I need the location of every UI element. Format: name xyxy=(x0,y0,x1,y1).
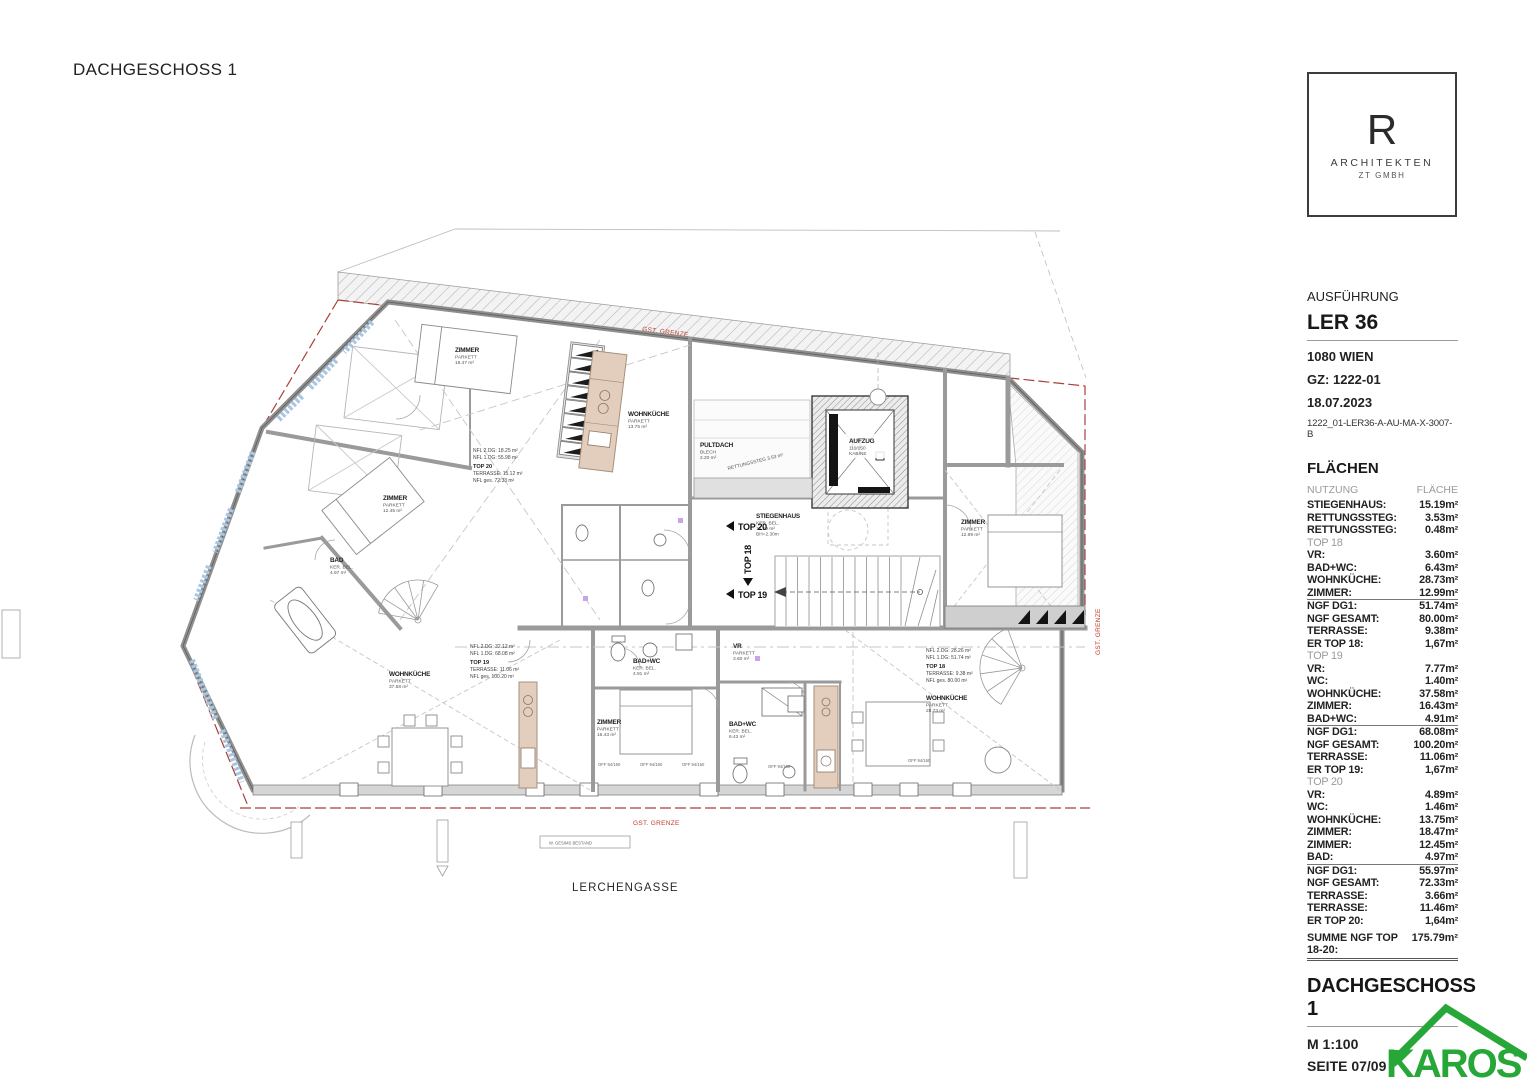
svg-text:ZIMMER: ZIMMER xyxy=(597,719,622,726)
area-row-label: WC: xyxy=(1307,675,1328,688)
stiegenhaus-label: STIEGENHAUS xyxy=(756,513,801,520)
area-row-value: 1,67m² xyxy=(1425,764,1458,777)
area-row-value: 16.43m² xyxy=(1419,700,1458,713)
svg-text:BLECH: BLECH xyxy=(700,450,717,456)
area-row-label: TERRASSE: xyxy=(1307,751,1368,764)
svg-text:WOHNKÜCHE: WOHNKÜCHE xyxy=(389,669,431,678)
svg-text:TOP 19: TOP 19 xyxy=(470,660,489,666)
svg-text:VR: VR xyxy=(733,643,742,650)
svg-text:KER. BEL.: KER. BEL. xyxy=(729,729,752,735)
svg-text:OFF 94/160: OFF 94/160 xyxy=(598,762,621,767)
area-row-value: 3.60m² xyxy=(1425,549,1458,562)
area-row-value: 3.53m² xyxy=(1425,512,1458,525)
area-row-value: 55.97m² xyxy=(1419,865,1458,878)
svg-text:TOP 19: TOP 19 xyxy=(738,590,767,600)
elevator-label: AUFZUG xyxy=(849,438,875,445)
col-flaeche: FLÄCHE xyxy=(1417,484,1458,496)
area-row: TERRASSE: 3.66m² xyxy=(1307,890,1458,903)
svg-text:3.60 m²: 3.60 m² xyxy=(733,656,750,662)
gesims-note: W. GESIMS BESTAND xyxy=(549,841,592,846)
area-row-label: ER TOP 18: xyxy=(1307,638,1363,651)
svg-text:BAD+WC: BAD+WC xyxy=(633,658,661,665)
area-row-label: TERRASSE: xyxy=(1307,625,1368,638)
area-row-value: 28.73m² xyxy=(1419,574,1458,587)
svg-text:NFL 2.DG: 18.25 m²: NFL 2.DG: 18.25 m² xyxy=(473,448,518,454)
area-row-value: 68.08m² xyxy=(1419,726,1458,739)
areas-table-header: NUTZUNG FLÄCHE xyxy=(1307,484,1458,496)
area-row-label: VR: xyxy=(1307,789,1325,802)
pultdach-zone: PULTDACH BLECH 2.20 m² RETTUNGSSTEG 3.53… xyxy=(694,400,812,498)
area-row-label: NGF GESAMT: xyxy=(1307,877,1379,890)
svg-text:KABINE: KABINE xyxy=(849,451,867,457)
svg-text:28.73 m²: 28.73 m² xyxy=(926,708,945,714)
area-row-label: RETTUNGSSTEG: xyxy=(1307,512,1397,525)
area-row: BAD+WC: 4.91m² xyxy=(1307,713,1458,727)
svg-text:OFF 94/160: OFF 94/160 xyxy=(640,762,663,767)
street-label: LERCHENGASSE xyxy=(572,882,679,894)
area-row: NGF DG1: 68.08m² xyxy=(1307,726,1458,739)
area-row-value: 13.75m² xyxy=(1419,814,1458,827)
svg-text:TERRASSE: 15.12 m²: TERRASSE: 15.12 m² xyxy=(473,471,523,477)
svg-text:NFL ges. 72.33 m²: NFL ges. 72.33 m² xyxy=(473,478,515,484)
area-row-value: 1,67m² xyxy=(1425,638,1458,651)
area-row-label: WOHNKÜCHE: xyxy=(1307,814,1381,827)
area-row: RETTUNGSSTEG: 0.48m² xyxy=(1307,524,1458,537)
titleblock: R ARCHITEKTEN ZT GMBH AUSFÜHRUNG LER 36 … xyxy=(1307,0,1458,1080)
area-row-label: WOHNKÜCHE: xyxy=(1307,688,1381,701)
svg-text:KER. BEL.: KER. BEL. xyxy=(633,666,656,672)
svg-text:OFF 94/160: OFF 94/160 xyxy=(768,764,791,769)
area-row-label: ZIMMER: xyxy=(1307,826,1352,839)
svg-text:PARKETT: PARKETT xyxy=(455,355,477,361)
area-row: VR: 4.89m² xyxy=(1307,789,1458,802)
svg-text:111/150: 111/150 xyxy=(849,446,866,452)
sum-value: 175.79m² xyxy=(1412,932,1458,956)
logo-letter: R xyxy=(1367,110,1397,150)
kitchen-top19 xyxy=(519,682,537,788)
svg-text:PARKETT: PARKETT xyxy=(383,503,405,509)
svg-text:12.99 m²: 12.99 m² xyxy=(961,532,980,538)
area-row-value: 12.45m² xyxy=(1419,839,1458,852)
area-row-value: 11.46m² xyxy=(1420,902,1458,915)
area-row-value: 0.48m² xyxy=(1425,524,1458,537)
south-facade xyxy=(253,785,1062,795)
area-row: ZIMMER: 12.45m² xyxy=(1307,839,1458,852)
svg-text:13.75 m²: 13.75 m² xyxy=(628,424,647,430)
svg-text:BH=2.30m: BH=2.30m xyxy=(756,532,779,538)
area-row: BAD: 4.97m² xyxy=(1307,851,1458,865)
document-number: 1222_01-LER36-A-AU-MA-X-3007-B xyxy=(1307,418,1458,440)
area-row: TOP 19 xyxy=(1307,650,1458,663)
area-row-value: 51.74m² xyxy=(1419,600,1458,613)
svg-text:NFL 2.DG: 28.26 m²: NFL 2.DG: 28.26 m² xyxy=(926,648,971,654)
svg-text:16.43 m²: 16.43 m² xyxy=(597,732,616,738)
svg-text:4.91 m²: 4.91 m² xyxy=(633,671,650,677)
area-row-label: TERRASSE: xyxy=(1307,890,1368,903)
area-row: ER TOP 20: 1,64m² xyxy=(1307,915,1458,928)
area-row-value: 80.00m² xyxy=(1419,613,1458,626)
area-row-value: 72.33m² xyxy=(1419,877,1458,890)
project-city: 1080 WIEN xyxy=(1307,349,1458,364)
area-row-label: ER TOP 20: xyxy=(1307,915,1363,928)
svg-text:BAD: BAD xyxy=(330,557,344,564)
area-row-label: VR: xyxy=(1307,663,1325,676)
area-row-value: 1.46m² xyxy=(1425,801,1458,814)
svg-text:TERRASSE: 11.06 m²: TERRASSE: 11.06 m² xyxy=(470,667,519,673)
svg-text:TOP 20: TOP 20 xyxy=(473,464,492,470)
axis-bubble xyxy=(870,389,886,405)
area-row-value: 4.89m² xyxy=(1425,789,1458,802)
area-row-label: NGF DG1: xyxy=(1307,726,1357,739)
area-row: NGF DG1: 51.74m² xyxy=(1307,600,1458,613)
svg-text:WOHNKÜCHE: WOHNKÜCHE xyxy=(628,409,670,418)
logo-name: ARCHITEKTEN xyxy=(1331,157,1434,169)
area-row-label: TERRASSE: xyxy=(1307,902,1368,915)
svg-text:TOP 18: TOP 18 xyxy=(926,664,945,670)
area-row: VR: 7.77m² xyxy=(1307,663,1458,676)
area-row: WC: 1.40m² xyxy=(1307,675,1458,688)
area-row-value: 7.77m² xyxy=(1425,663,1458,676)
area-row-value: 18.47m² xyxy=(1419,826,1458,839)
svg-text:PARKETT: PARKETT xyxy=(926,703,948,709)
svg-text:18.47 m²: 18.47 m² xyxy=(455,360,474,366)
svg-text:TOP 20: TOP 20 xyxy=(738,522,767,532)
area-row-label: BAD: xyxy=(1307,851,1333,864)
area-row-label: BAD+WC: xyxy=(1307,713,1357,726)
area-row-label: NGF GESAMT: xyxy=(1307,739,1379,752)
svg-text:NFL 1.DG: 55.98 m²: NFL 1.DG: 55.98 m² xyxy=(473,455,518,461)
svg-text:ZIMMER: ZIMMER xyxy=(961,519,986,526)
drawing-sheet: DACHGESCHOSS 1 GST. xyxy=(0,0,1527,1080)
svg-text:PARKETT: PARKETT xyxy=(597,727,619,733)
svg-text:OFF 94/160: OFF 94/160 xyxy=(682,762,705,767)
area-row-label: ER TOP 19: xyxy=(1307,764,1363,777)
svg-text:PARKETT: PARKETT xyxy=(733,651,755,657)
area-row-value: 12.99m² xyxy=(1419,587,1458,600)
area-row-label: NGF DG1: xyxy=(1307,865,1357,878)
area-row-value: 37.58m² xyxy=(1419,688,1458,701)
area-row-value: 11.06m² xyxy=(1420,751,1458,764)
svg-text:NFL 1.DG: 51.74 m²: NFL 1.DG: 51.74 m² xyxy=(926,655,971,661)
area-row: NGF GESAMT: 100.20m² xyxy=(1307,739,1458,752)
svg-text:37.58 m²: 37.58 m² xyxy=(389,684,408,690)
area-row-label: BAD+WC: xyxy=(1307,562,1357,575)
area-row: TERRASSE: 11.06m² xyxy=(1307,751,1458,764)
area-row: ER TOP 19: 1,67m² xyxy=(1307,764,1458,777)
area-row-label: ZIMMER: xyxy=(1307,700,1352,713)
svg-text:TOP 18: TOP 18 xyxy=(743,545,753,574)
svg-text:NFL ges. 80.00 m²: NFL ges. 80.00 m² xyxy=(926,678,968,684)
project-gz: GZ: 1222-01 xyxy=(1307,372,1458,387)
svg-text:4.97 m²: 4.97 m² xyxy=(330,570,347,576)
svg-text:PARKETT: PARKETT xyxy=(628,419,650,425)
entry-top18: TOP 18 xyxy=(743,545,753,586)
area-row-label: TOP 18 xyxy=(1307,537,1343,550)
area-row: TERRASSE: 11.46m² xyxy=(1307,902,1458,915)
pultdach-label: PULTDACH xyxy=(700,442,734,449)
area-row: RETTUNGSSTEG: 3.53m² xyxy=(1307,512,1458,525)
area-row-value: 1,64m² xyxy=(1425,915,1458,928)
area-row-label: NGF DG1: xyxy=(1307,600,1357,613)
area-row-value: 6.43m² xyxy=(1425,562,1458,575)
area-row: WC: 1.46m² xyxy=(1307,801,1458,814)
area-row: NGF DG1: 55.97m² xyxy=(1307,865,1458,878)
area-row-value: 9.38m² xyxy=(1425,625,1458,638)
area-row: ZIMMER: 12.99m² xyxy=(1307,587,1458,601)
area-row: STIEGENHAUS: 15.19m² xyxy=(1307,499,1458,512)
svg-text:ZIMMER: ZIMMER xyxy=(455,347,480,354)
area-row: TOP 18 xyxy=(1307,537,1458,550)
project-name: LER 36 xyxy=(1307,311,1458,341)
terrace-steps xyxy=(945,606,1085,628)
area-row-label: RETTUNGSSTEG: xyxy=(1307,524,1397,537)
area-row-value: 100.20m² xyxy=(1413,739,1458,752)
svg-text:NFL ges. 100.20 m²: NFL ges. 100.20 m² xyxy=(470,674,514,680)
svg-text:12.45 m²: 12.45 m² xyxy=(383,508,402,514)
area-row: WOHNKÜCHE: 28.73m² xyxy=(1307,574,1458,587)
svg-text:ZIMMER: ZIMMER xyxy=(383,495,408,502)
svg-text:PARKETT: PARKETT xyxy=(389,679,411,685)
col-nutzung: NUTZUNG xyxy=(1307,484,1358,496)
area-row: NGF GESAMT: 80.00m² xyxy=(1307,613,1458,626)
area-row-label: WOHNKÜCHE: xyxy=(1307,574,1381,587)
svg-text:TERRASSE: 9.38 m²: TERRASSE: 9.38 m² xyxy=(926,671,973,677)
area-row-value: 4.97m² xyxy=(1425,851,1458,864)
area-row: TERRASSE: 9.38m² xyxy=(1307,625,1458,638)
karos-wordmark: KAROS xyxy=(1386,1042,1522,1080)
svg-text:NFL 2.DG: 32.12 m²: NFL 2.DG: 32.12 m² xyxy=(470,644,515,650)
svg-text:2.20 m²: 2.20 m² xyxy=(700,455,717,461)
logo-subname: ZT GMBH xyxy=(1358,171,1405,180)
area-row-value: 4.91m² xyxy=(1425,713,1458,726)
boundary-label-right: GST. GRENZE xyxy=(1095,608,1102,655)
svg-text:6.43 m²: 6.43 m² xyxy=(729,734,746,740)
project-date: 18.07.2023 xyxy=(1307,395,1458,410)
area-row-label: WC: xyxy=(1307,801,1328,814)
floor-plan: GST. GRENZE GST. GRENZE GST. GRENZE xyxy=(0,0,1300,1080)
area-row-label: VR: xyxy=(1307,549,1325,562)
area-row: ZIMMER: 18.47m² xyxy=(1307,826,1458,839)
area-row-label: ZIMMER: xyxy=(1307,587,1352,600)
area-row: ER TOP 18: 1,67m² xyxy=(1307,638,1458,651)
area-row: ZIMMER: 16.43m² xyxy=(1307,700,1458,713)
area-row: WOHNKÜCHE: 13.75m² xyxy=(1307,814,1458,827)
area-row-label: TOP 20 xyxy=(1307,776,1343,789)
karos-logo: KAROS xyxy=(1386,1000,1527,1080)
area-row: TOP 20 xyxy=(1307,776,1458,789)
kitchen-top18 xyxy=(814,686,838,788)
area-row-label: STIEGENHAUS: xyxy=(1307,499,1386,512)
rettungssteg-band xyxy=(694,478,812,498)
area-row: BAD+WC: 6.43m² xyxy=(1307,562,1458,575)
area-row-label: NGF GESAMT: xyxy=(1307,613,1379,626)
area-row-value: 15.19m² xyxy=(1419,499,1458,512)
svg-text:PARKETT: PARKETT xyxy=(961,527,983,533)
project-phase: AUSFÜHRUNG xyxy=(1307,289,1458,304)
svg-text:KER. BEL.: KER. BEL. xyxy=(330,565,353,571)
svg-text:NFL 1.DG: 68.08 m²: NFL 1.DG: 68.08 m² xyxy=(470,651,515,657)
boundary-label-bottom: GST. GRENZE xyxy=(633,820,680,827)
areas-heading: FLÄCHEN xyxy=(1307,460,1458,477)
area-row-value: 1.40m² xyxy=(1425,675,1458,688)
area-row-label: TOP 19 xyxy=(1307,650,1343,663)
areas-sum-row: SUMME NGF TOP 18-20: 175.79m² xyxy=(1307,932,1458,961)
area-row: WOHNKÜCHE: 37.58m² xyxy=(1307,688,1458,701)
svg-text:OFF 94/160: OFF 94/160 xyxy=(908,758,931,763)
svg-text:WOHNKÜCHE: WOHNKÜCHE xyxy=(926,693,968,702)
svg-text:BAD+WC: BAD+WC xyxy=(729,721,757,728)
area-row-value: 3.66m² xyxy=(1425,890,1458,903)
area-row: NGF GESAMT: 72.33m² xyxy=(1307,877,1458,890)
architect-logo: R ARCHITEKTEN ZT GMBH xyxy=(1307,72,1457,217)
area-row: VR: 3.60m² xyxy=(1307,549,1458,562)
areas-table: STIEGENHAUS: 15.19m² RETTUNGSSTEG: 3.53m… xyxy=(1307,499,1458,927)
area-row-label: ZIMMER: xyxy=(1307,839,1352,852)
sum-label: SUMME NGF TOP 18-20: xyxy=(1307,932,1412,956)
